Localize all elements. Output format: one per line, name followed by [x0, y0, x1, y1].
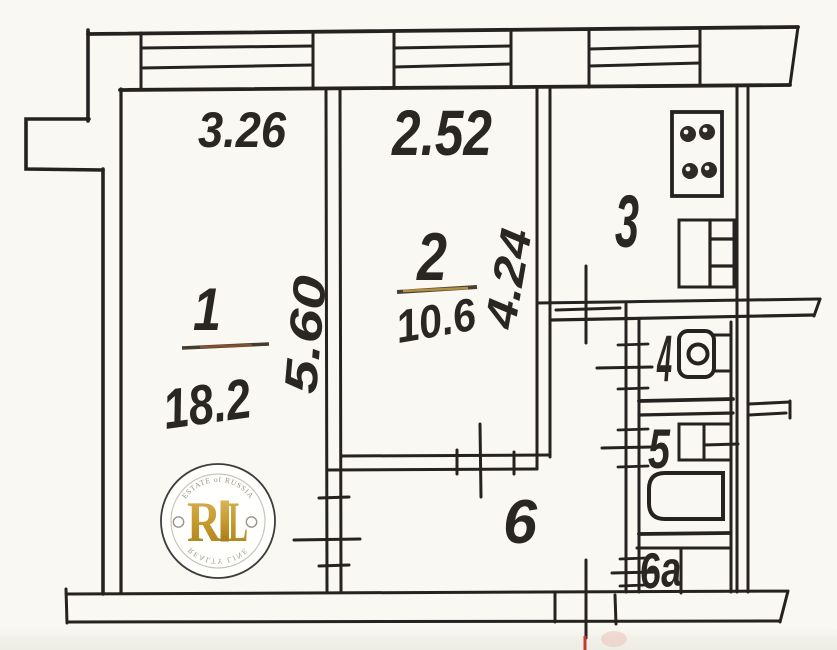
svg-text:5: 5 — [648, 417, 671, 480]
svg-text:L: L — [228, 491, 248, 554]
svg-text:4: 4 — [656, 321, 672, 395]
svg-text:6: 6 — [503, 488, 538, 557]
svg-text:2: 2 — [415, 219, 447, 295]
svg-text:18.2: 18.2 — [159, 366, 255, 441]
svg-text:2.52: 2.52 — [391, 97, 492, 169]
svg-text:3: 3 — [615, 180, 639, 263]
svg-text:6a: 6a — [637, 540, 684, 599]
svg-text:1: 1 — [193, 276, 221, 343]
svg-text:R: R — [187, 491, 222, 554]
svg-text:3.26: 3.26 — [198, 102, 287, 158]
svg-text:5.60: 5.60 — [274, 273, 336, 396]
